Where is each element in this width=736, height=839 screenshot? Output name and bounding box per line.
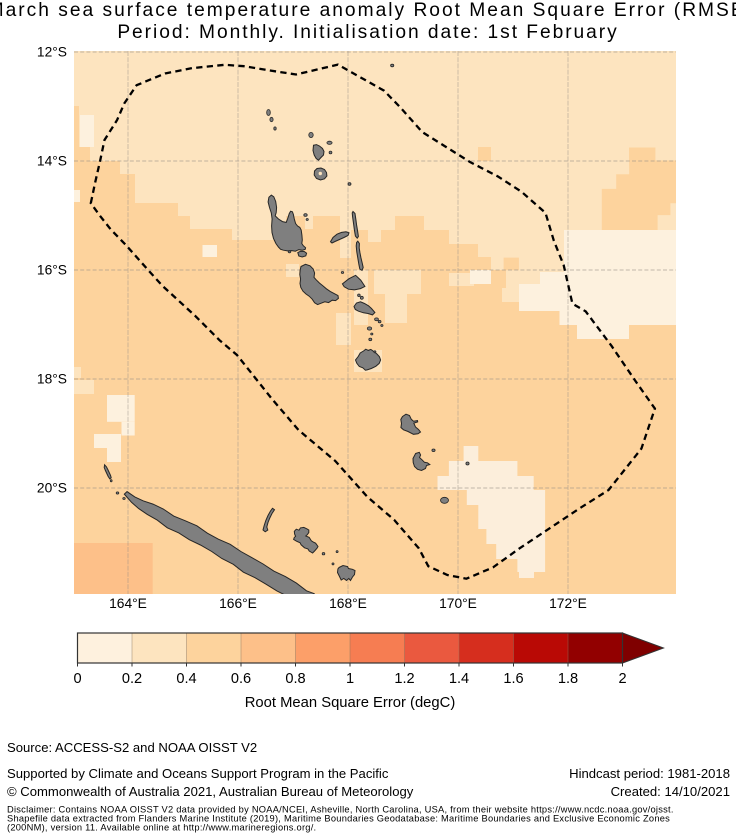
svg-text:Created: 14/10/2021: Created: 14/10/2021 xyxy=(611,784,730,799)
svg-text:168°E: 168°E xyxy=(329,596,367,611)
svg-text:0.4: 0.4 xyxy=(176,671,196,687)
svg-text:Hindcast period: 1981-2018: Hindcast period: 1981-2018 xyxy=(569,766,730,781)
svg-text:Source: ACCESS-S2 and NOAA OIS: Source: ACCESS-S2 and NOAA OISST V2 xyxy=(7,740,257,755)
svg-text:18°S: 18°S xyxy=(37,372,67,387)
svg-text:164°E: 164°E xyxy=(109,596,147,611)
svg-text:Period: Monthly. Initialisatio: Period: Monthly. Initialisation date: 1s… xyxy=(117,22,618,43)
svg-text:0.8: 0.8 xyxy=(285,671,305,687)
svg-text:170°E: 170°E xyxy=(439,596,477,611)
svg-text:March sea surface temperature: March sea surface temperature anomaly Ro… xyxy=(0,0,736,21)
svg-text:1.2: 1.2 xyxy=(394,671,414,687)
svg-text:1.6: 1.6 xyxy=(503,671,523,687)
svg-text:0: 0 xyxy=(73,671,81,687)
svg-text:12°S: 12°S xyxy=(37,45,67,60)
svg-text:14°S: 14°S xyxy=(37,154,67,169)
svg-text:172°E: 172°E xyxy=(549,596,587,611)
svg-text:2: 2 xyxy=(618,671,626,687)
svg-text:Root Mean Square Error (degC): Root Mean Square Error (degC) xyxy=(245,695,456,711)
svg-text:166°E: 166°E xyxy=(219,596,257,611)
svg-text:(200NM), version 11. Available: (200NM), version 11. Available online at… xyxy=(7,823,316,833)
svg-text:0.2: 0.2 xyxy=(122,671,142,687)
svg-text:20°S: 20°S xyxy=(37,481,67,496)
svg-text:16°S: 16°S xyxy=(37,263,67,278)
svg-text:1.8: 1.8 xyxy=(558,671,578,687)
svg-text:0.6: 0.6 xyxy=(231,671,251,687)
svg-text:Supported by Climate and Ocean: Supported by Climate and Oceans Support … xyxy=(7,766,389,781)
svg-text:1: 1 xyxy=(346,671,354,687)
svg-text:1.4: 1.4 xyxy=(449,671,469,687)
svg-text:© Commonwealth of Australia 20: © Commonwealth of Australia 2021, Austra… xyxy=(7,784,414,799)
